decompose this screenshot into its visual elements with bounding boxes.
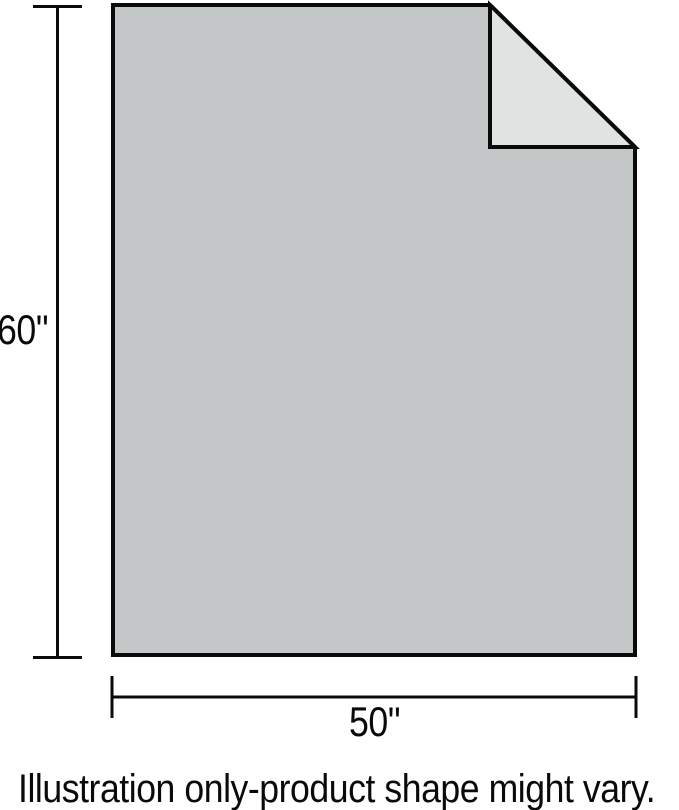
width-dimension-label: 50" <box>349 701 400 743</box>
product-dimension-illustration: 60" 50" Illustration only-product shape … <box>0 0 679 810</box>
illustration-caption: Illustration only-product shape might va… <box>18 769 655 809</box>
height-dimension-label: 60" <box>0 309 48 351</box>
dimension-diagram <box>0 0 679 810</box>
folded-corner <box>490 5 635 147</box>
